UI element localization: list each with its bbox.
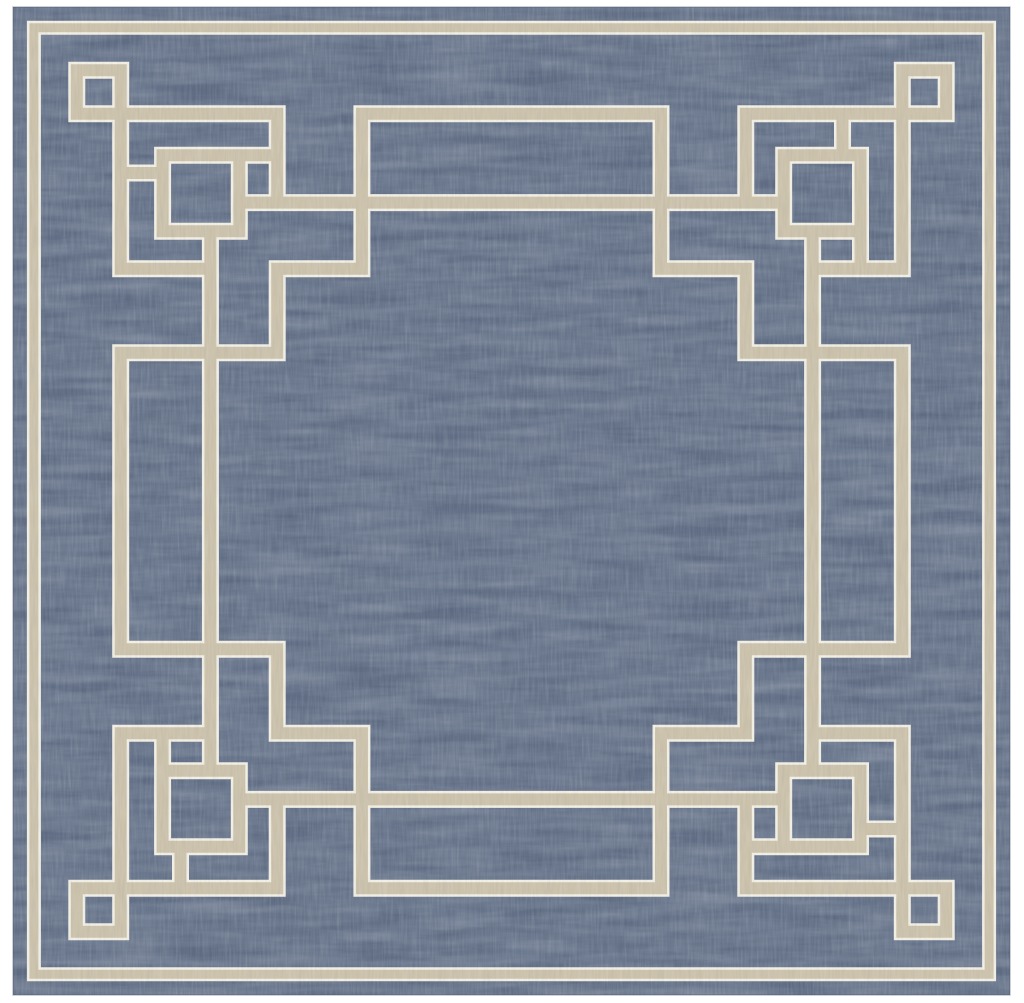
rug-weave-ribs-dark bbox=[13, 7, 1010, 995]
rug-product-photo bbox=[0, 0, 1024, 1003]
rug-canvas bbox=[0, 0, 1024, 1003]
rug bbox=[13, 7, 1010, 995]
